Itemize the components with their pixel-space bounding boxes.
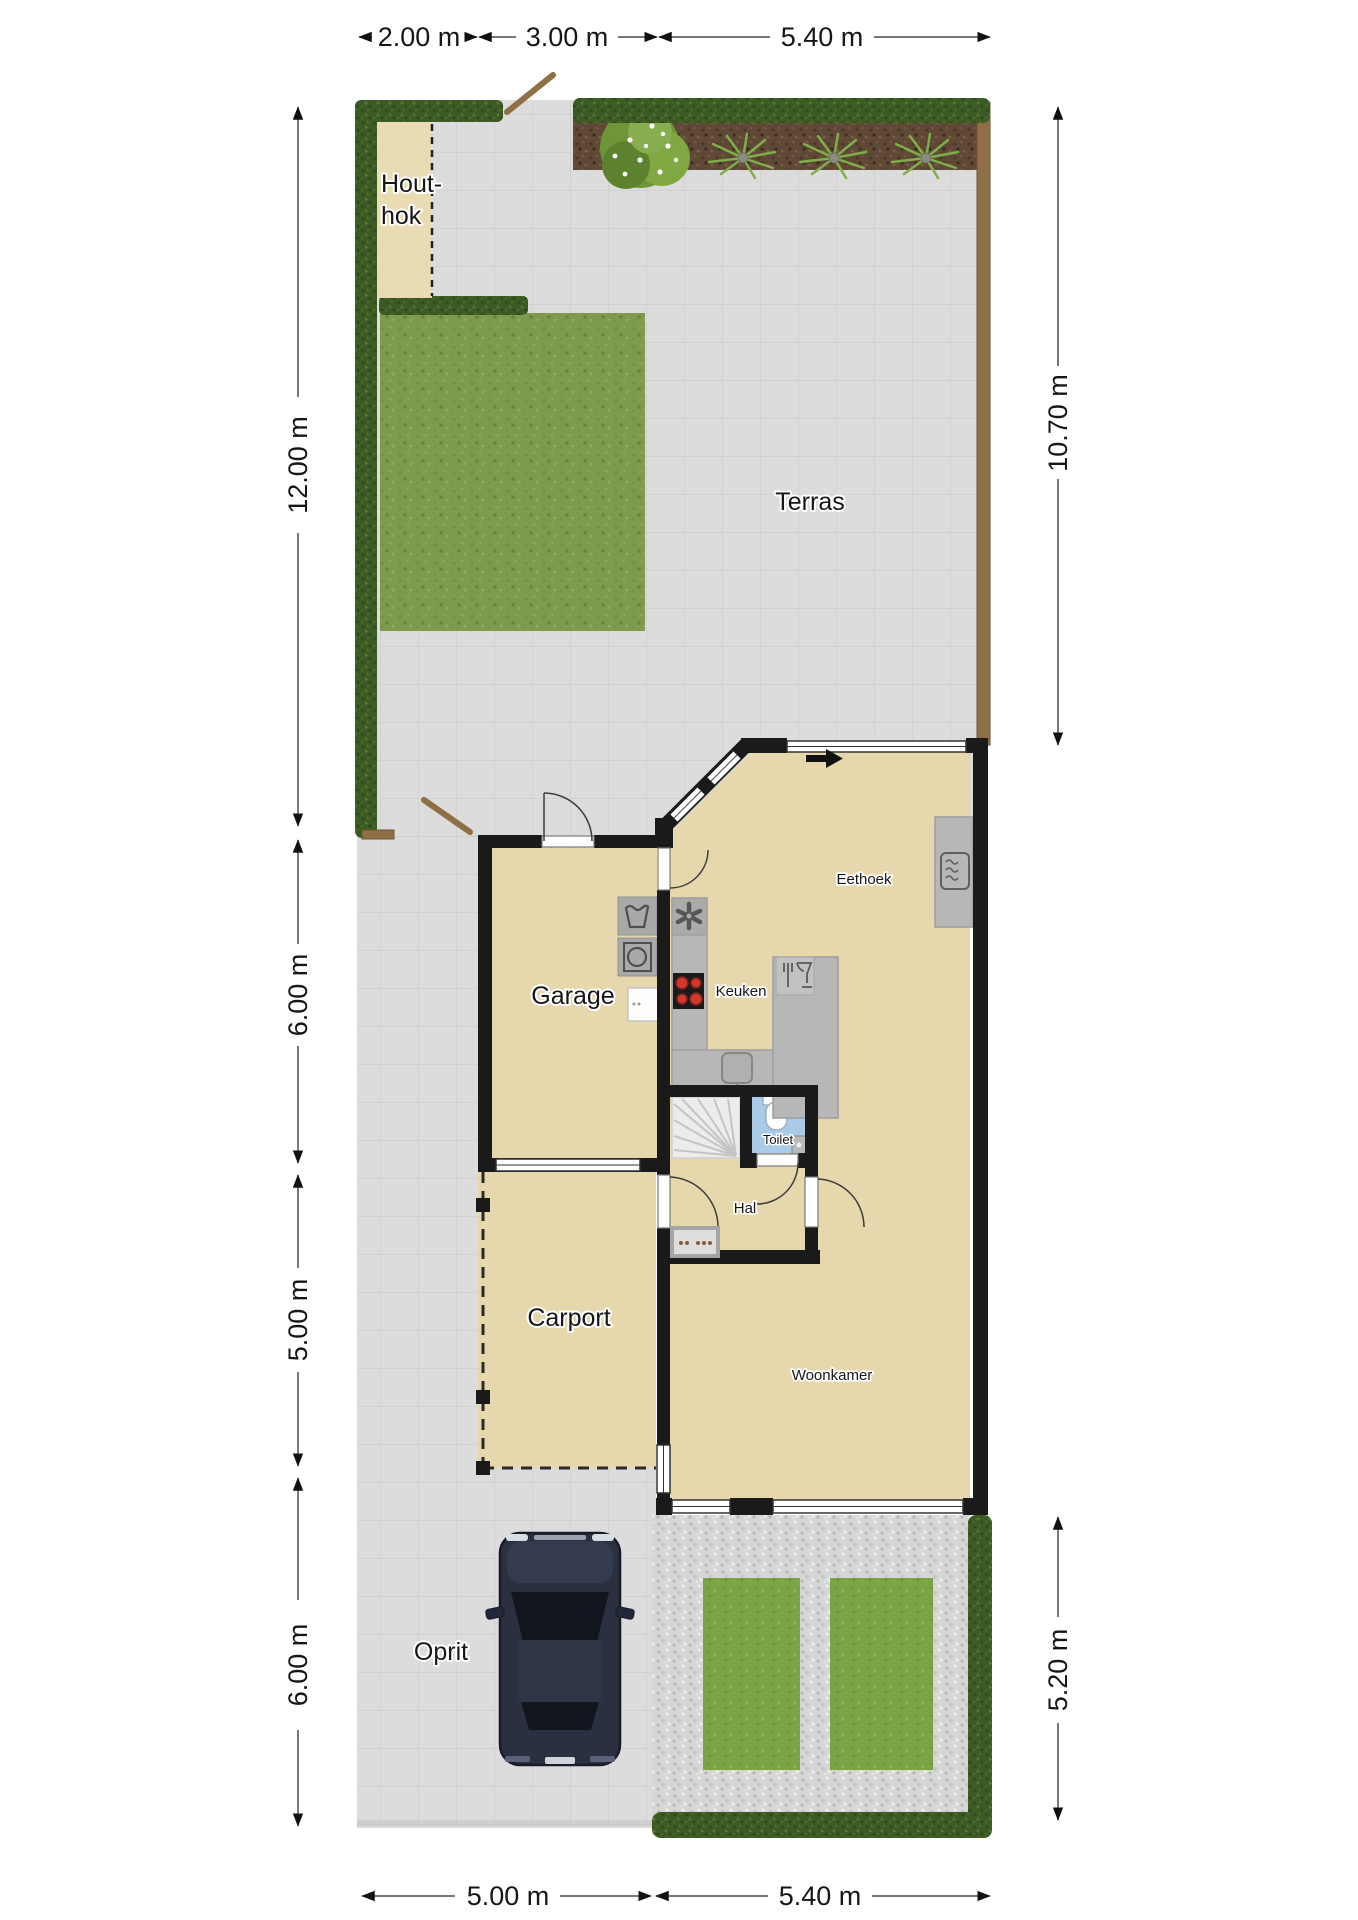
hedge-bottom [652,1812,992,1838]
window-woonkamer-left [657,1445,670,1493]
carport-post-2 [476,1390,490,1404]
car-rear-window [521,1702,599,1730]
wall-right [973,740,988,1515]
wall-bottom-right-corner [963,1498,988,1515]
car-taillight-left [505,1756,530,1762]
label-eethoek: Eethoek [836,871,892,888]
wall-hal-right-lower [805,1227,818,1264]
dim-bottom-1: 5.00 m [467,1881,550,1911]
hedge-mid [379,296,528,315]
paving-edge-shadow [357,1820,652,1828]
label-garage: Garage [531,982,614,1010]
car-hood [507,1541,613,1583]
label-houthok-line2: hok [381,202,422,230]
carport-post-1 [476,1198,490,1212]
fence-piece-left [362,830,394,839]
car-front-grille [534,1535,586,1540]
car [485,1533,635,1765]
dishwasher-icon [776,957,814,995]
label-houthok-line1: Hout- [381,170,442,198]
dim-top-3: 5.40 m [781,22,864,52]
dim-left-3: 5.00 m [283,1279,313,1362]
label-toilet: Toilet [763,1132,794,1147]
dim-left-1: 12.00 m [283,416,313,514]
label-woonkamer: Woonkamer [792,1367,873,1384]
sink-icon [722,1053,752,1089]
wall-bottom-mid [730,1498,773,1515]
wall-garage-top-left [478,835,542,848]
label-keuken: Keuken [716,983,767,1000]
car-license-plate [545,1757,575,1764]
lawn [380,313,645,631]
car-headlight-right [592,1534,614,1541]
dim-bottom-2: 5.40 m [779,1881,862,1911]
fence-right [977,102,990,745]
wall-stairs-toilet-top [657,1085,818,1097]
dim-left-2: 6.00 m [283,954,313,1037]
dim-left-4: 6.00 m [283,1624,313,1707]
grass-patch-right [830,1578,933,1770]
hedge-bed [573,98,990,123]
eethoek-cabinet [935,817,973,927]
fridge-icon [628,988,658,1021]
staircase [672,1097,740,1158]
wall-toilet-bottom-left [740,1153,757,1168]
cooktop-icon [673,973,704,1009]
car-headlight-left [506,1534,528,1541]
label-carport: Carport [527,1304,610,1332]
window-eethoek-top [787,741,966,752]
hedge-right-column [968,1515,992,1838]
window-woonkamer-bottom-left [672,1500,730,1513]
window-woonkamer-bottom-right [773,1500,963,1513]
car-windshield [511,1592,609,1642]
window-garage-carport [496,1159,640,1171]
extractor-fan-icon [672,898,707,935]
dim-top-1: 2.00 m [378,22,461,52]
hedge-left-column [355,100,377,838]
label-terras: Terras [775,488,844,516]
label-hal: Hal [734,1200,757,1217]
wall-bottom-left-corner [656,1498,672,1515]
floorplan-page: Hout- hok Terras Garage Eethoek Keuken T… [0,0,1358,1920]
wall-house-left-mid [657,890,670,1175]
grass-patch-left [703,1578,800,1770]
washing-machine-icon [618,938,657,976]
dim-right-2: 5.20 m [1043,1629,1073,1712]
wall-toilet-bottom-right [798,1153,818,1168]
car-roof [517,1640,603,1702]
car-taillight-right [590,1756,615,1762]
label-oprit: Oprit [414,1638,468,1666]
wall-garage-left [478,835,492,1172]
floorplan-canvas: Hout- hok Terras Garage Eethoek Keuken T… [0,0,1358,1920]
laundry-tub-icon [618,897,657,935]
hedge-top-left [355,100,503,122]
dim-right-1: 10.70 m [1043,374,1073,472]
doormat [672,1228,718,1256]
dim-top-2: 3.00 m [526,22,609,52]
carport-post-3 [476,1461,490,1475]
